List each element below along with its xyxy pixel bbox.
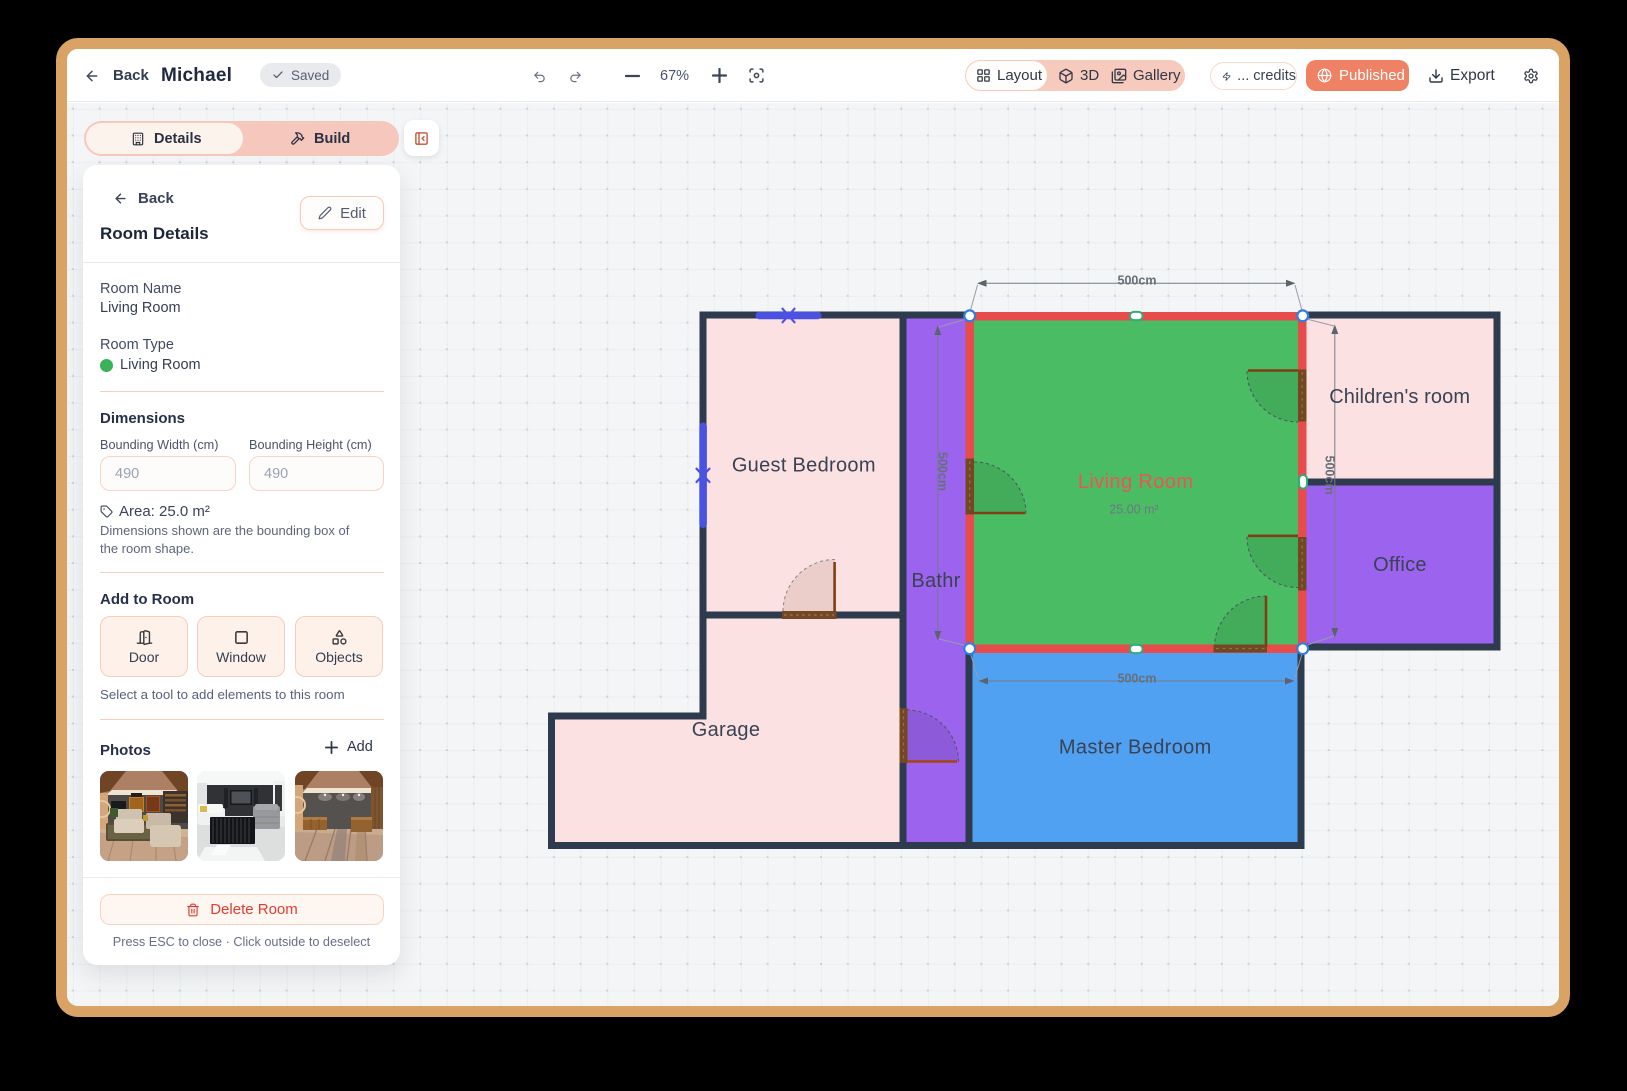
svg-text:Bathr: Bathr [911, 570, 960, 592]
svg-text:500cm: 500cm [1323, 456, 1337, 495]
svg-text:Office: Office [1373, 554, 1427, 576]
svg-text:Living Room: Living Room [1078, 471, 1194, 493]
svg-text:Master Bedroom: Master Bedroom [1059, 737, 1212, 759]
svg-text:25.00 m²: 25.00 m² [1109, 503, 1158, 517]
svg-text:500cm: 500cm [1118, 672, 1157, 686]
svg-text:500cm: 500cm [936, 452, 950, 491]
svg-text:Garage: Garage [692, 719, 761, 741]
svg-text:500cm: 500cm [1118, 274, 1157, 288]
svg-text:Children's room: Children's room [1329, 386, 1470, 408]
svg-text:Guest Bedroom: Guest Bedroom [732, 455, 876, 477]
